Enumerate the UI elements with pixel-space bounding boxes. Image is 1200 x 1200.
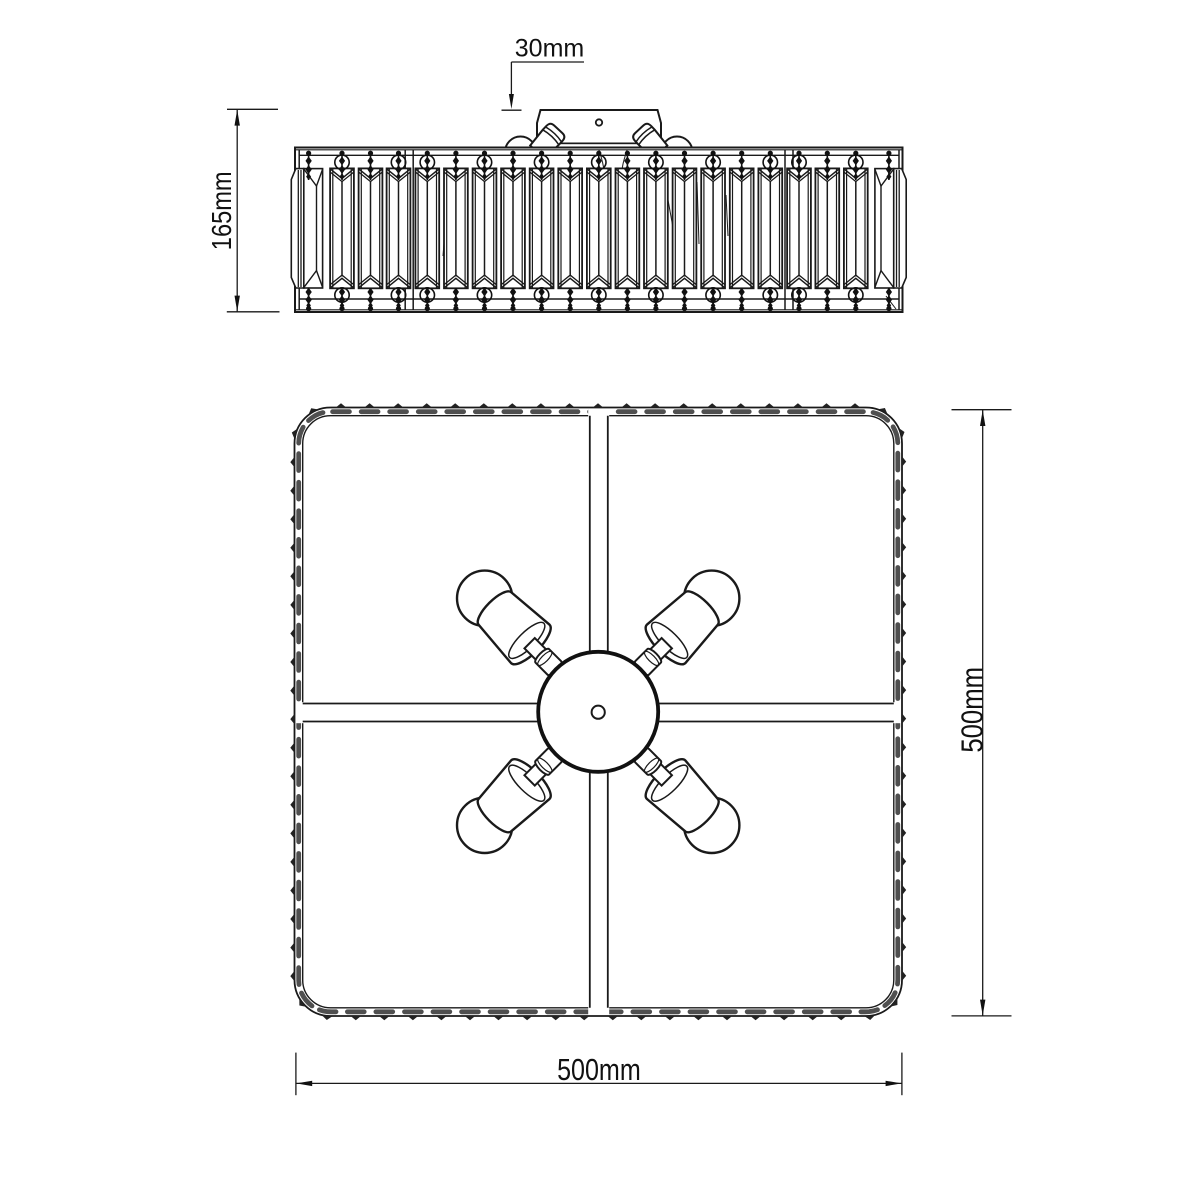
svg-text:165mm: 165mm (207, 171, 237, 250)
svg-text:30mm: 30mm (515, 35, 584, 63)
svg-text:500mm: 500mm (557, 1051, 641, 1086)
svg-text:500mm: 500mm (955, 667, 990, 753)
